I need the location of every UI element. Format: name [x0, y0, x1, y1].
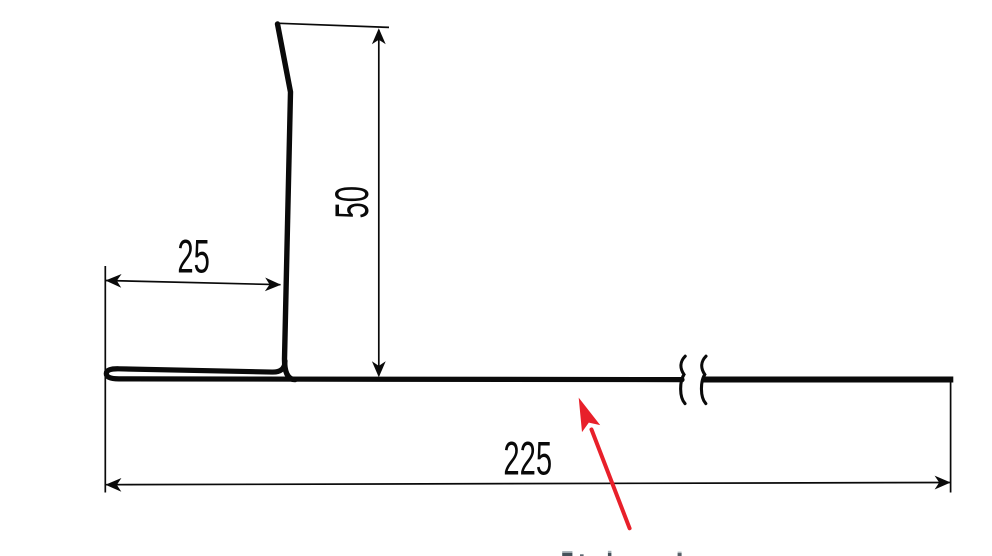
svg-text:225: 225 — [503, 432, 552, 485]
svg-text:50: 50 — [326, 186, 379, 218]
svg-text:25: 25 — [177, 230, 209, 283]
